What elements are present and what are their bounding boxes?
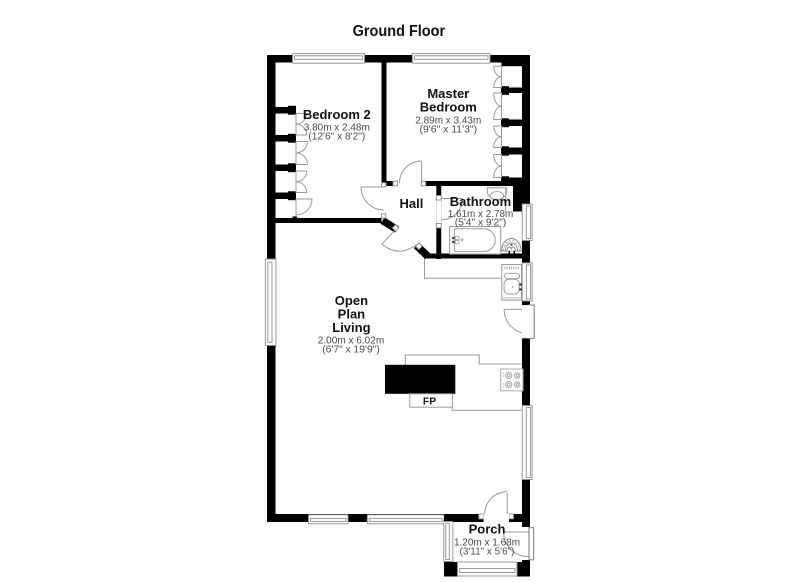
svg-text:Bathroom: Bathroom — [450, 194, 511, 209]
svg-text:(6'7" x 19'9"): (6'7" x 19'9") — [322, 344, 380, 355]
svg-text:Bedroom: Bedroom — [420, 99, 477, 114]
svg-text:FP: FP — [423, 396, 437, 407]
svg-text:Hall: Hall — [399, 196, 423, 211]
svg-text:Living: Living — [332, 320, 370, 335]
svg-text:(12'6" x 8'2"): (12'6" x 8'2") — [308, 131, 365, 142]
svg-text:(3'11" x 5'6"): (3'11" x 5'6") — [460, 547, 515, 558]
svg-text:(5'4" x 9'2"): (5'4" x 9'2") — [455, 217, 507, 228]
svg-text:Ground Floor: Ground Floor — [353, 23, 446, 40]
svg-text:(9'6" x 11'3"): (9'6" x 11'3") — [420, 125, 478, 136]
svg-text:Bedroom 2: Bedroom 2 — [303, 107, 371, 122]
svg-text:Porch: Porch — [469, 521, 506, 536]
